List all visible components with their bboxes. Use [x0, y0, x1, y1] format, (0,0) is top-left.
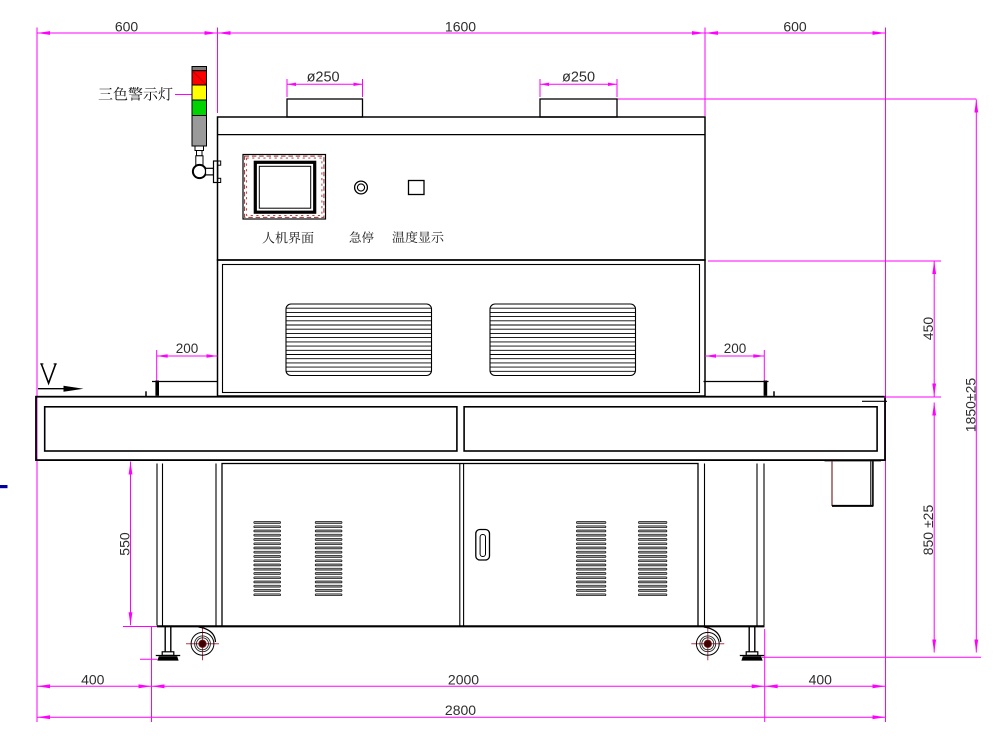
svg-text:850 ±25: 850 ±25 — [920, 505, 936, 556]
svg-text:2000: 2000 — [448, 671, 479, 687]
svg-text:ø250: ø250 — [307, 69, 340, 85]
svg-text:600: 600 — [115, 19, 139, 35]
svg-text:600: 600 — [783, 19, 807, 35]
svg-text:1850±25: 1850±25 — [963, 378, 979, 433]
svg-text:400: 400 — [81, 671, 105, 687]
svg-text:450: 450 — [920, 317, 936, 341]
svg-text:200: 200 — [724, 341, 747, 356]
svg-text:550: 550 — [116, 532, 132, 556]
svg-text:400: 400 — [809, 671, 833, 687]
svg-text:200: 200 — [176, 341, 199, 356]
svg-text:1600: 1600 — [445, 19, 476, 35]
svg-text:ø250: ø250 — [562, 69, 595, 85]
svg-text:2800: 2800 — [445, 702, 476, 718]
